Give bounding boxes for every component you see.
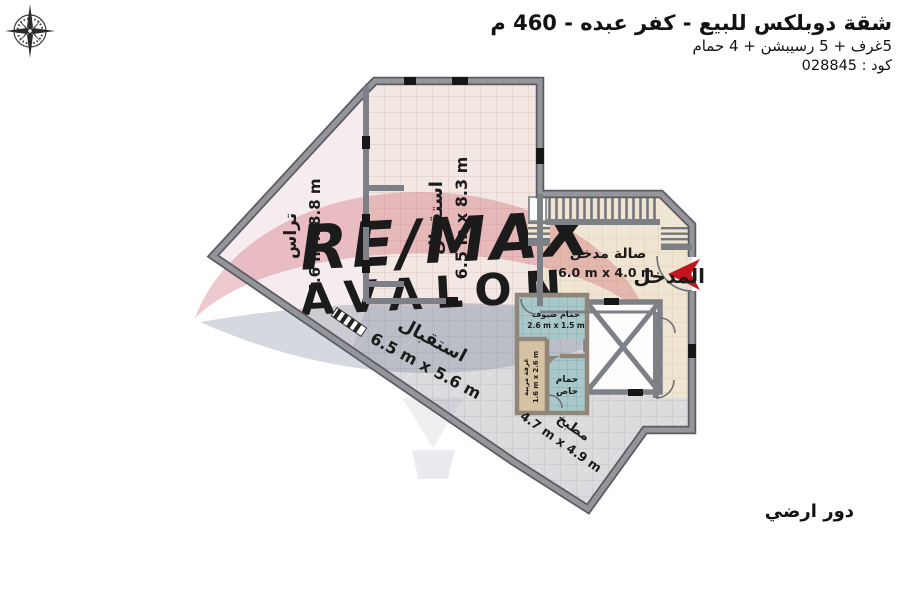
private-bath-name-2: خاص	[556, 387, 578, 397]
terrace-dims: 5.6 m x 8.8 m	[306, 179, 324, 294]
floor-level-label: دور ارضي	[765, 501, 854, 522]
compass-icon	[0, 0, 60, 62]
terrace-name: تراس	[281, 213, 301, 259]
header: شقة دوبلكس للبيع - كفر عبده - 460 م 5غرف…	[490, 10, 892, 76]
entrance-hall-dims: 6.0 m x 4.0 m	[558, 265, 654, 280]
guest-bath-dims: 2.6 m x 1.5 m	[527, 321, 585, 330]
reception-top-name: استقبال	[426, 181, 447, 255]
elevator-shaft	[583, 302, 660, 392]
page-subtitle: 5غرف + 5 رسيبشن + 4 حمام	[490, 36, 892, 56]
nanny-room-dims: 1.6 m x 2.6 m	[532, 351, 540, 403]
private-bath-name-1: حمام	[556, 375, 579, 385]
listing-code: كود : 028845	[490, 57, 892, 77]
page-title: شقة دوبلكس للبيع - كفر عبده - 460 م	[490, 10, 892, 36]
guest-bath-name: حمام ضيوف	[532, 310, 580, 319]
entrance-hall-name: صالة مدخل	[570, 246, 647, 262]
floorplan-page: RE/MAX AVALON	[0, 0, 900, 599]
nanny-room-name: غرفة مربية	[522, 358, 530, 396]
reception-top-dims: 6.5 m x 8.3 m	[452, 157, 471, 280]
